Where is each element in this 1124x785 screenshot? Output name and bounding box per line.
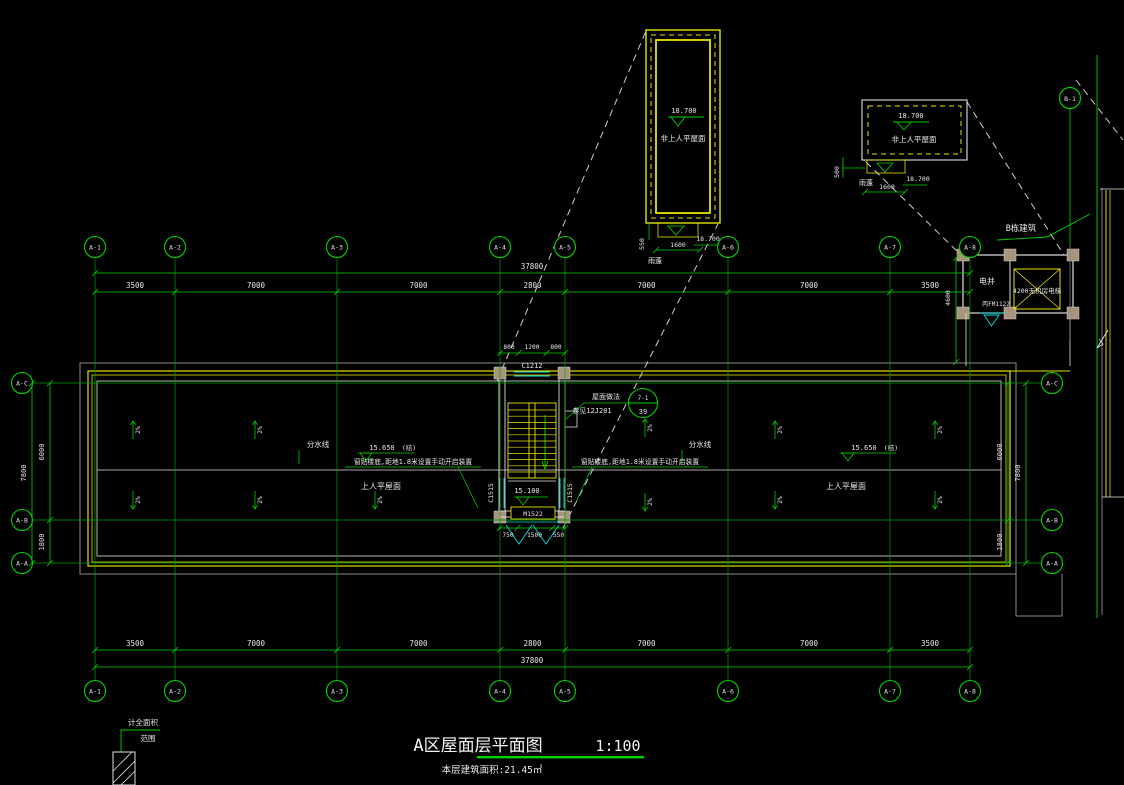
axis-bubble: A-4 [490,237,511,258]
canopy-triangle-icon [668,226,684,235]
elevation-value: 15.650 [369,444,394,452]
dim-text: 6000 [38,444,46,461]
dim-text: 800 [503,344,514,351]
elevation-suffix: (结) [402,443,416,452]
elevation-triangle-icon [842,453,854,461]
axis-bubble-label: A-4 [494,244,506,252]
dim-text: 7000 [637,281,656,290]
dim-text: 3500 [921,281,940,290]
axis-bubble: A-6 [718,681,739,702]
canopy-label: 雨蓬 [859,178,873,187]
axis-bubble-label: A-A [16,560,28,568]
dim-text: 7000 [409,639,428,648]
slope-mark: 2% [933,491,945,509]
slope-label: 2% [135,426,142,434]
slope-label: 2% [647,498,654,506]
slope-label: 2% [257,496,264,504]
slope-mark: 2% [933,421,945,439]
axis-bubble-label: B-1 [1064,95,1076,103]
projection-lines [497,31,1123,528]
axis-bubble: A-7 [880,681,901,702]
detail-stair-roof: 18.700 非上人平屋面 550 1600 18.700 雨蓬 [638,30,720,265]
elevation-value: 18.700 [671,107,696,115]
legend-label-line2: 范围 [141,733,156,743]
legend-label-line1: 计全面积 [128,717,158,727]
dim-text: 1800 [996,534,1004,551]
axis-bubble: A-4 [490,681,511,702]
slope-mark: 2% [773,491,785,509]
window-note: 窗贴楼底,距地1.8米设置手动开启装置 [354,457,473,466]
axis-bubble-label: A-5 [559,244,571,252]
detail-sheet: 39 [639,408,647,416]
door-tag: M1522 [523,510,543,518]
divide-line-label: 分水线 [689,439,712,449]
dim-text: 3500 [126,639,145,648]
axis-bubble-label: A-3 [331,688,343,696]
slope-mark: 2% [773,421,785,439]
slope-mark: 2% [253,421,265,439]
axis-bubble: A-8 [960,237,981,258]
axis-bubble: A-5 [555,237,576,258]
canopy-elevation: 18.700 [696,235,720,243]
detail-elevator-roof: 18.700 非上人平屋面 500 雨蓬 1600 18.700 [833,100,967,195]
column [1067,249,1079,261]
title-block: A区屋面层平面图 1:100 本层建筑面积:21.45㎡ [413,736,644,776]
fire-door-tag: 丙FM1122 [982,301,1010,308]
column [957,307,969,319]
dim-text: 7000 [800,281,819,290]
dim-text: 550 [553,532,564,539]
axis-bubble: A-1 [85,681,106,702]
slope-label: 2% [937,496,944,504]
slope-mark: 2% [253,491,265,509]
stair-core: C1212 C1515 C1515 15.100 M1522 屋面做法 参见12… [487,362,658,544]
dim-text: 7000 [637,639,656,648]
axis-bubble: A-2 [165,681,186,702]
axis-bubble: A-C [1042,373,1063,394]
dim-text: 2800 [523,281,542,290]
hatch-line [113,752,132,771]
axis-bubble-label: A-B [16,517,28,525]
axis-bubble-label: A-1 [89,688,101,696]
roof-type-label: 非上人平屋面 [661,133,706,143]
axis-bubble-label: A-6 [722,688,734,696]
axis-bubble: A-A [1042,553,1063,574]
dim-text: 7800 [20,465,28,482]
slope-label: 2% [937,426,944,434]
left-wing-annotations: 分水线 15.650 (结) 上人平屋面 窗贴楼底,距地1.8米设置手动开启装置 [299,439,481,508]
roof-wall-line [97,381,1001,556]
axis-bubble: A-2 [165,237,186,258]
canopy-triangle-icon [984,315,999,326]
slope-mark: 2% [373,491,385,509]
axis-bubble-label: A-C [1046,380,1058,388]
axis-bubble-label: A-B [1046,517,1058,525]
axis-bubble: A-A [12,553,33,574]
shaft-label: 电井 [979,276,995,286]
dim-text: 1800 [38,534,46,551]
axis-bubble-label: A-6 [722,244,734,252]
dim-text: 800 [550,344,561,351]
roof-note-line2: 参见12J201 [572,406,611,415]
slope-label: 2% [777,426,784,434]
plan-outer-boundary [80,363,1016,574]
drawing-title: A区屋面层平面图 [413,736,542,756]
axis-bubble: A-6 [718,237,739,258]
axis-bubble: A-3 [327,681,348,702]
dim-text: 6000 [996,444,1004,461]
window-tag: C1212 [521,362,542,370]
axis-bubble-label: A-2 [169,244,181,252]
canopy-triangle-icon [877,163,893,172]
elevation-suffix: (结) [884,443,898,452]
projection-line [497,31,646,381]
dim-text: 1500 [527,532,542,539]
dim-text: 1200 [525,344,540,351]
parapet-outer [88,371,1010,566]
slope-label: 2% [777,496,784,504]
slope-label: 2% [257,426,264,434]
axis-bubble: A-B [1042,510,1063,531]
stair-flight-outline [508,403,556,478]
axis-bubble: A-8 [960,681,981,702]
roof-note-line1: 屋面做法 [592,392,620,401]
leader-line [576,467,592,502]
right-wing-annotations: 分水线 15.650 (结) 上人平屋面 窗贴楼底,距地1.8米设置手动开启装置 [572,439,898,502]
axis-bubble-label: A-8 [964,244,976,252]
canopy-depth-dim: 500 [833,166,841,178]
projection-line [1076,80,1123,140]
column [1004,249,1016,261]
dim-text: 2800 [523,639,542,648]
window-tag: C1515 [566,483,574,503]
dim-text: 37800 [521,656,544,665]
elevation-triangle-icon [897,122,911,130]
axis-bubble-label: A-C [16,380,28,388]
axis-bubble-label: A-A [1046,560,1058,568]
axis-bubble: A-C [12,373,33,394]
slope-mark: 2% [131,491,143,509]
axis-grid [33,258,1041,680]
dim-text: 7000 [247,639,266,648]
axis-bubble-label: A-4 [494,688,506,696]
axis-bubble-label: A-7 [884,688,896,696]
axis-bubble: A-B [12,510,33,531]
slope-label: 2% [135,496,142,504]
slope-label: 2% [377,496,384,504]
cad-drawing-canvas: 18.700 非上人平屋面 550 1600 18.700 雨蓬 18.700 … [0,0,1124,785]
canopy-width-dim: 1600 [879,183,895,191]
slope-mark: 2% [131,421,143,439]
canopy-width-dim: 1600 [670,241,686,249]
canopy-elevation: 18.700 [906,175,930,183]
window-note: 窗贴楼底,距地1.8米设置手动开启装置 [581,457,700,466]
elevation-value: 15.100 [514,487,539,495]
leader-line [458,467,478,508]
axis-bubble-label: A-2 [169,688,181,696]
drawing-subtitle: 本层建筑面积:21.45㎡ [442,764,543,776]
title-underline [477,756,644,758]
roof-type-label: 非上人平屋面 [892,134,937,144]
dim-text: 7000 [800,639,819,648]
slope-mark: 2% [643,493,655,511]
dim-text: 7000 [409,281,428,290]
legend: 计全面积 范围 [113,717,160,785]
dim-text: 37800 [521,262,544,271]
axis-bubbles: A-1A-1A-2A-2A-3A-3A-4A-4A-5A-5A-6A-6A-7A… [12,237,1063,702]
hatch-line [113,761,135,783]
drawing-scale: 1:100 [595,737,640,755]
dim-text: 750 [502,532,513,539]
dim-text: 3500 [921,639,940,648]
elevation-triangle-icon [517,497,529,505]
dim-text: 7000 [247,281,266,290]
detail-wall [656,40,710,213]
elevator-label: 4200无机房电梯 [1013,286,1062,295]
divide-line-label: 分水线 [307,439,330,449]
detail-number: 7-1 [638,395,649,402]
roof-surface-label: 上人平屋面 [361,482,401,491]
column [558,367,570,379]
axis-bubble: A-5 [555,681,576,702]
elevation-value: 15.650 [851,444,876,452]
detail-outline [646,30,720,223]
window-tag: C1515 [487,483,495,503]
dimensions: 3780035007000700028007000700035003500700… [20,255,1029,670]
projection-line [563,224,718,528]
adjacent-building-label: B栋建筑 [1006,223,1037,234]
dim-text: 4600 [944,290,952,306]
detail-dashed-line [651,35,715,218]
axis-bubble: A-7 [880,237,901,258]
detail-outline [862,100,967,160]
axis-bubble-label: A-1 [89,244,101,252]
stair-divider [529,403,535,478]
axis-bubble-label: A-8 [964,688,976,696]
roof-surface-label: 上人平屋面 [826,482,866,491]
axis-bubble-label: A-7 [884,244,896,252]
axis-bubble: A-1 [85,237,106,258]
slope-mark: 2% [643,419,655,437]
building-b-edge: B-1 [1060,55,1124,618]
canopy-depth-dim: 550 [638,238,646,250]
elevation-value: 18.700 [898,112,923,120]
canopy-label: 雨蓬 [648,256,662,265]
axis-bubble-label: A-5 [559,688,571,696]
slope-label: 2% [647,424,654,432]
elevation-triangle-icon [671,117,685,126]
column [1067,307,1079,319]
canopy-outline [658,223,698,237]
dim-text: 3500 [126,281,145,290]
axis-bubble: A-3 [327,237,348,258]
axis-bubble-label: A-3 [331,244,343,252]
dim-text: 7800 [1014,465,1022,482]
